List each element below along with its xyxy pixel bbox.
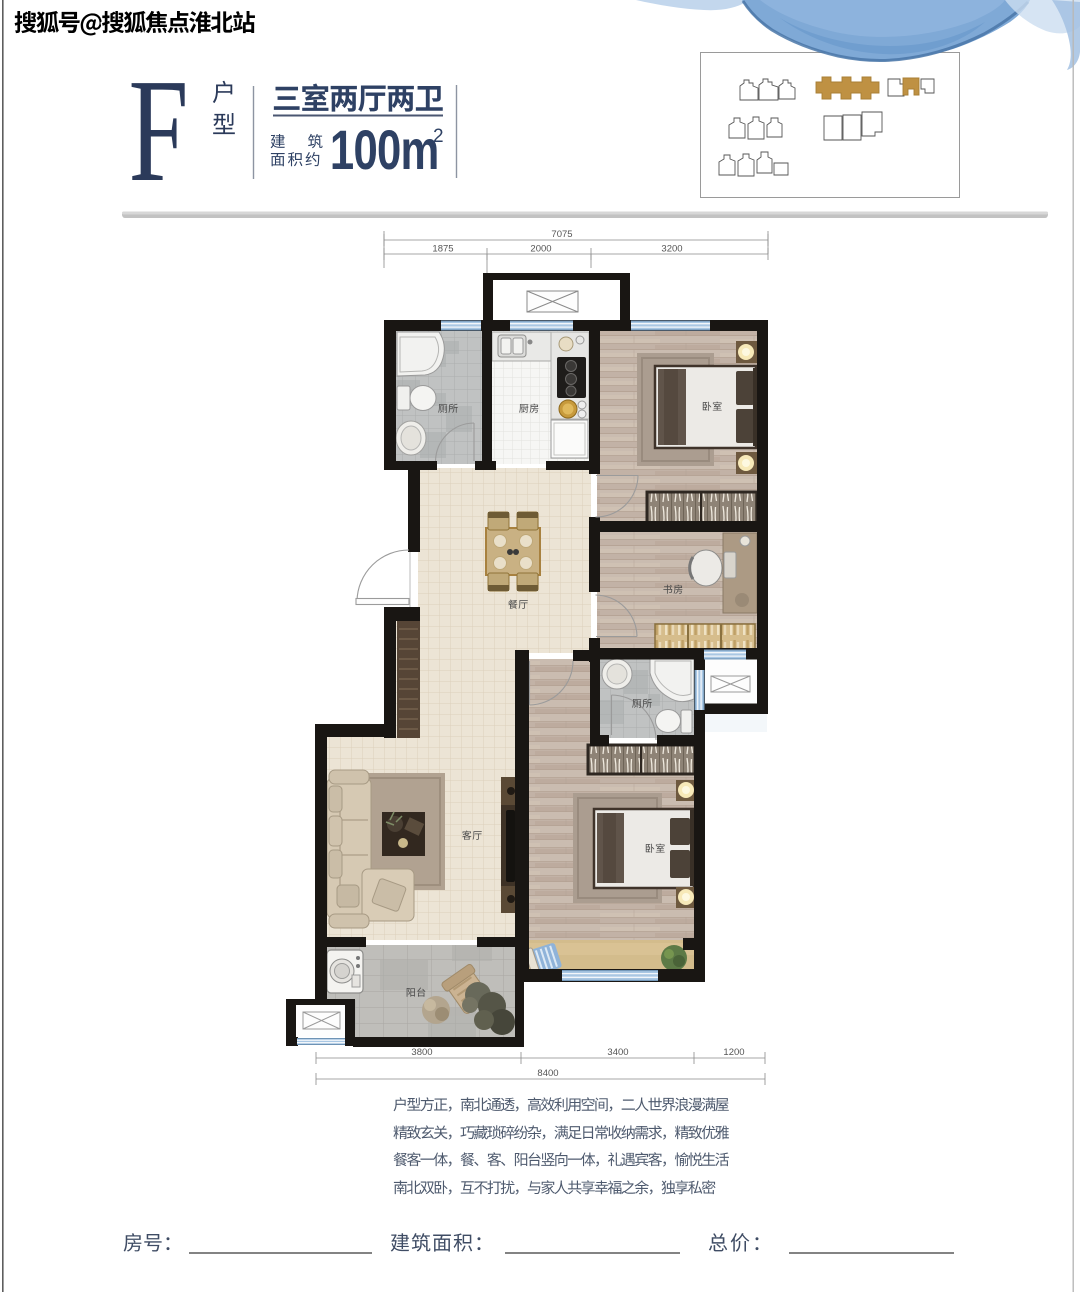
svg-text:2: 2 xyxy=(433,126,444,147)
svg-text:3200: 3200 xyxy=(661,244,682,255)
svg-text:100m: 100m xyxy=(330,119,439,181)
svg-text:3400: 3400 xyxy=(607,1047,628,1058)
svg-text:3800: 3800 xyxy=(411,1047,432,1058)
svg-text:8400: 8400 xyxy=(537,1068,558,1079)
svg-text:2000: 2000 xyxy=(530,244,551,255)
svg-text:7075: 7075 xyxy=(551,229,572,240)
svg-text:F: F xyxy=(128,50,188,213)
svg-text:1875: 1875 xyxy=(432,244,453,255)
svg-text:1200: 1200 xyxy=(723,1047,744,1058)
